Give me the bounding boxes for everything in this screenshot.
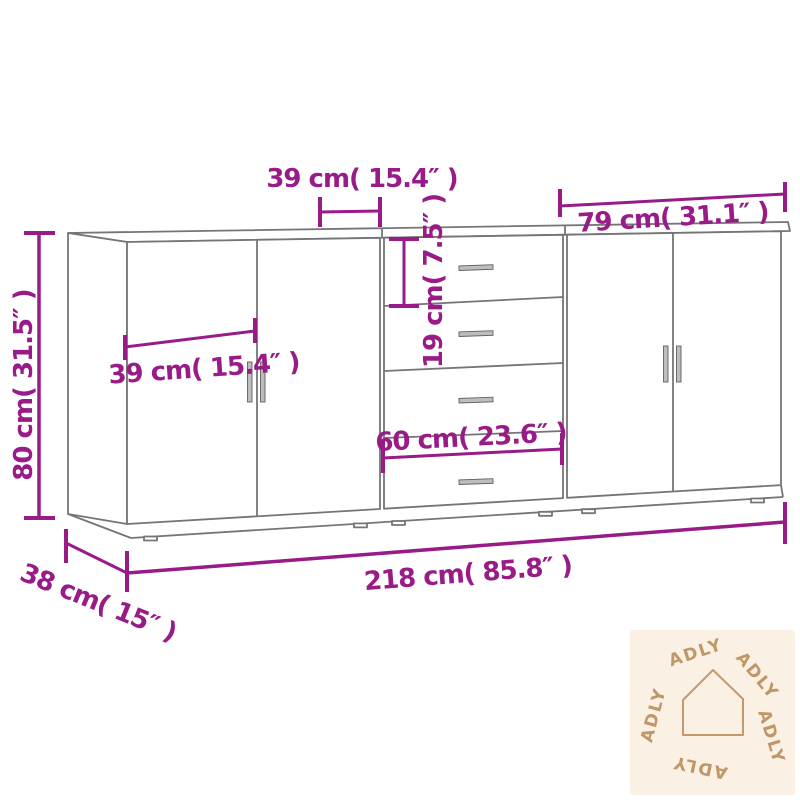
watermark-brand-text: ADLY (637, 685, 671, 744)
drawer-unit-front (384, 235, 563, 509)
watermark-brand-text: ADLY (671, 751, 730, 782)
plinth-right-edge (781, 485, 783, 497)
dim-top-door-width (320, 197, 380, 227)
drawer-handle (459, 331, 493, 337)
foot (392, 521, 405, 525)
door-handle (664, 346, 669, 382)
label-overall-height: 80 cm( 31.5″ ) (9, 289, 39, 480)
right-cabinet-front (567, 231, 781, 498)
drawer-handle (459, 397, 493, 403)
foot (144, 537, 157, 541)
foot (539, 512, 552, 516)
label-top-door-width: 39 cm( 15.4″ ) (266, 164, 457, 194)
watermark-brand-text: ADLY (753, 707, 788, 766)
foot (582, 509, 595, 513)
foot (751, 499, 764, 503)
foot (354, 523, 367, 527)
house-outline-icon (680, 668, 746, 738)
drawer-handle (459, 265, 493, 271)
watermark-brand-text: ADLY (666, 635, 725, 671)
label-drawer-height: 19 cm( 7.5″ ) (419, 194, 449, 368)
brand-watermark: ADLY ADLY ADLY ADLY ADLY (630, 630, 795, 795)
drawer-handle (459, 479, 493, 485)
product-dimension-diagram: 39 cm( 15.4″ ) 79 cm( 31.1″ ) 19 cm( 7.5… (0, 0, 800, 800)
door-handle (677, 346, 682, 382)
